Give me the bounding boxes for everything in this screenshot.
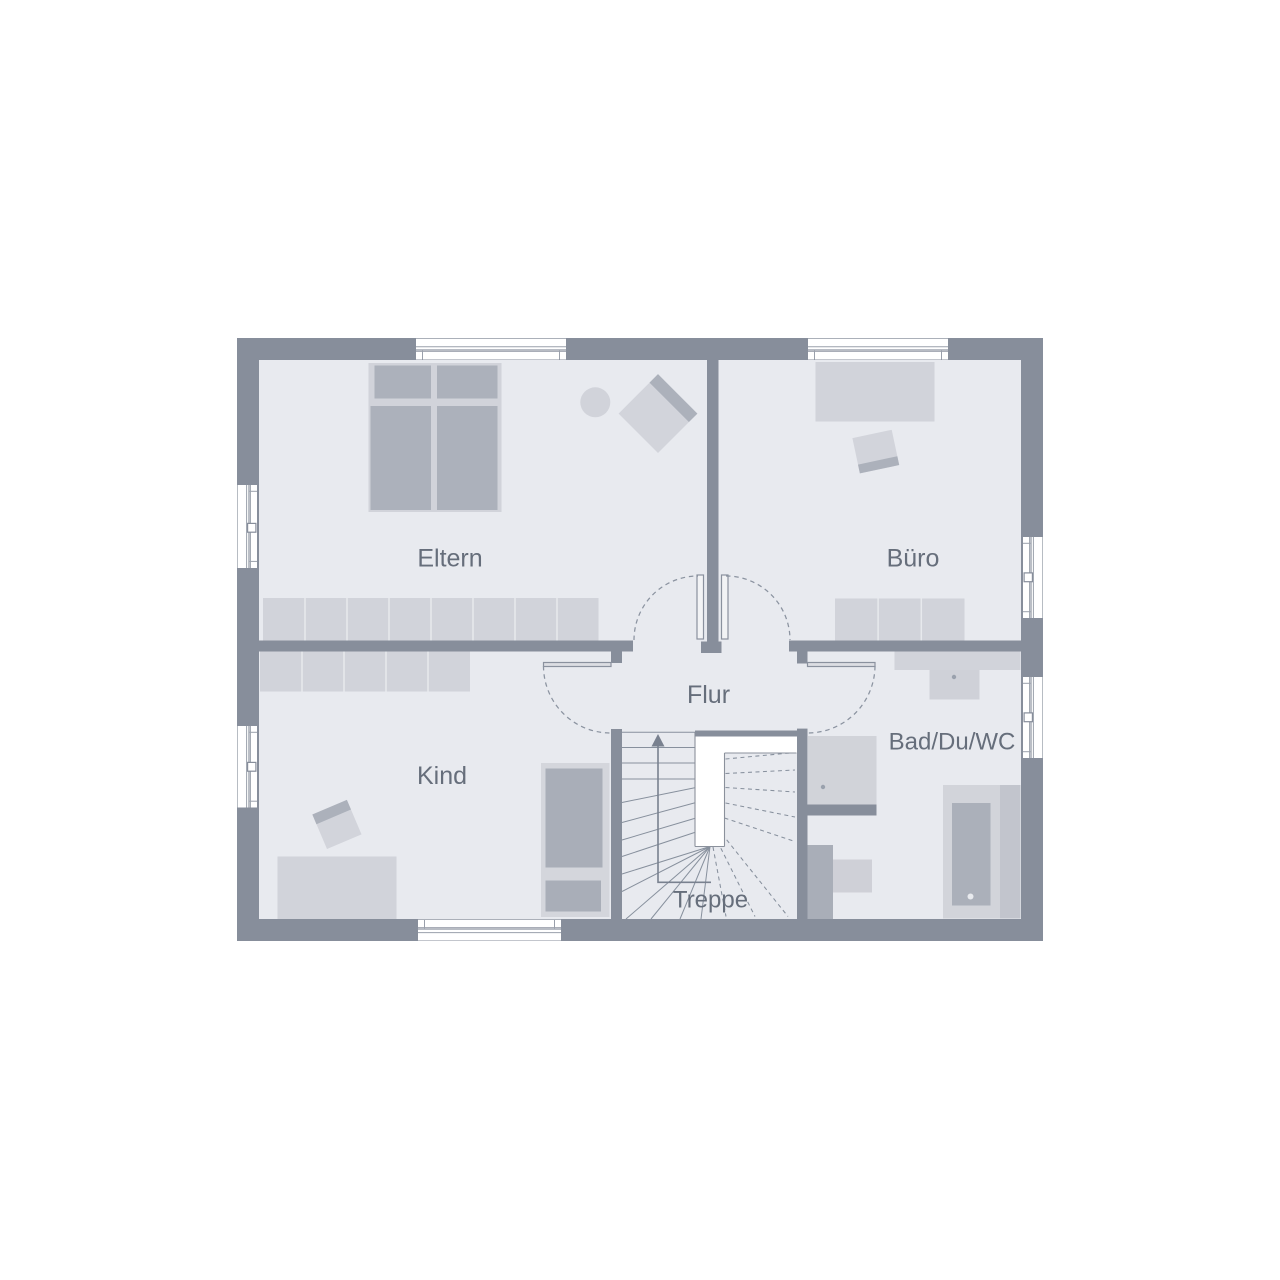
svg-text:Büro: Büro <box>887 545 940 573</box>
svg-text:Bad/Du/WC: Bad/Du/WC <box>889 729 1016 756</box>
svg-text:Kind: Kind <box>417 762 467 790</box>
svg-text:Treppe: Treppe <box>673 887 748 914</box>
svg-text:Eltern: Eltern <box>417 545 482 573</box>
svg-text:Flur: Flur <box>687 681 730 709</box>
